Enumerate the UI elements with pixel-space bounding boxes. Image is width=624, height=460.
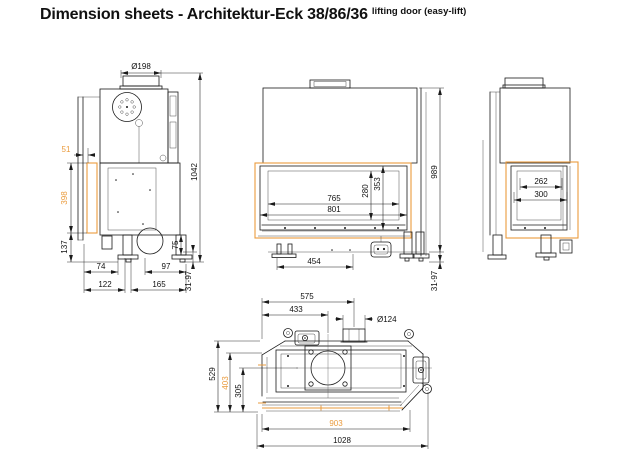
firebox-cavity: [276, 350, 406, 392]
rear-duct: [343, 329, 365, 342]
dim-total-width: 1028: [333, 436, 351, 445]
side-view-dimensions: Ø198 1042 31-97 137 398 51: [60, 62, 204, 293]
lifting-hook-left: [284, 329, 293, 338]
corner-bevel: [402, 388, 423, 410]
right-view-geometry: [483, 78, 578, 260]
dim-side-glass-width: 262: [534, 177, 548, 186]
dim-base-height: 137: [60, 240, 69, 254]
plan-view: 575 433 Ø124 529 403 305: [208, 292, 432, 449]
dim-leg-range-front: 31-97: [430, 270, 439, 291]
dim-foot-rear: 97: [162, 262, 171, 271]
dim-total-depth: 529: [208, 367, 217, 381]
dim-frame-height: 353: [373, 177, 382, 191]
cable-pulley: [136, 120, 143, 127]
dim-body-height: 989: [430, 165, 439, 179]
plan-view-geometry: [258, 329, 432, 412]
plan-view-dimensions: 575 433 Ø124 529 403 305: [208, 292, 428, 449]
dim-glass-height-side: 398: [60, 191, 69, 205]
dim-flue-diameter-side: Ø198: [131, 62, 151, 71]
drawing-canvas: Ø198 1042 31-97 137 398 51: [0, 0, 624, 460]
front-body: [263, 88, 417, 163]
dim-leg-height: 75: [171, 240, 180, 249]
lifting-hook-right: [405, 330, 414, 339]
convection-outlet: [137, 228, 163, 254]
dim-foot-front: 74: [97, 262, 106, 271]
dim-install-depth: 403: [221, 376, 230, 390]
dim-glass-width: 765: [327, 194, 341, 203]
right-body: [500, 88, 570, 163]
side-body: [100, 163, 180, 235]
dim-flue-offset: 433: [289, 305, 303, 314]
dimension-sheet: Dimension sheets - Architektur-Eck 38/86…: [0, 0, 624, 460]
dim-duct-diameter: Ø124: [377, 315, 397, 324]
dim-leg-range-side: 31-97: [184, 270, 193, 291]
dim-foot-front-total: 122: [98, 280, 112, 289]
side-view-geometry: [78, 76, 192, 262]
dim-glass-height: 280: [361, 184, 370, 198]
dim-frame-width: 801: [327, 205, 341, 214]
front-view-geometry: [255, 80, 429, 261]
flue-stub-right: [505, 78, 543, 88]
dim-side-frame-width: 300: [534, 190, 548, 199]
dim-foot-rear-total: 165: [152, 280, 166, 289]
flue-pipe-side: [123, 76, 159, 86]
front-view: 765 801 280 353 454 989 31-97: [255, 80, 444, 291]
dim-glass-offset: 51: [62, 145, 71, 154]
dim-total-height: 1042: [190, 163, 199, 181]
winch-housing: [100, 89, 168, 163]
right-view-dimensions: 262 300: [514, 177, 567, 203]
dim-feet-spacing: 454: [307, 257, 321, 266]
flue-stub-front: [310, 80, 350, 88]
dim-duct-offset: 575: [300, 292, 314, 301]
side-view: Ø198 1042 31-97 137 398 51: [60, 62, 204, 293]
front-view-dimensions: 765 801 280 353 454 989 31-97: [260, 88, 444, 291]
dim-install-width: 903: [329, 419, 343, 428]
leg: [123, 235, 132, 255]
right-view: 262 300: [483, 78, 578, 260]
dim-flue-center-depth: 305: [234, 384, 243, 398]
door-glass-highlight-side: [87, 163, 97, 233]
